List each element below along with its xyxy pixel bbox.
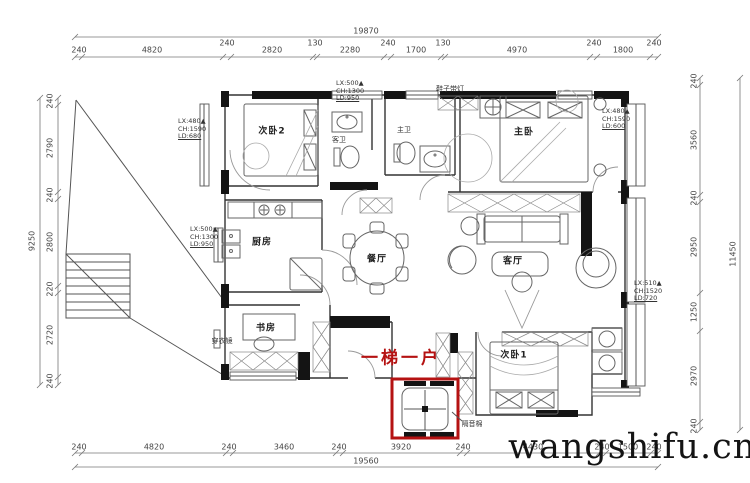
side-table (461, 217, 479, 235)
dim-label: 2720 (46, 325, 55, 345)
sofa (477, 214, 568, 244)
dim-label: 1250 (690, 302, 699, 322)
dim-label: 4820 (144, 443, 164, 452)
room-label-guest-bath: 客卫 (332, 135, 346, 145)
dim-label: 1700 (406, 46, 426, 55)
floorplan-drawing (0, 0, 750, 483)
dim-label: 2280 (340, 46, 360, 55)
dim-label: 240 (219, 39, 234, 48)
stool (512, 272, 532, 292)
label-soundproof: 隔音棉 (462, 419, 483, 429)
bed-bedroom2 (244, 104, 318, 176)
room-label-kitchen: 厨房 (252, 235, 272, 248)
room-label-master-bath: 主卫 (397, 125, 411, 135)
label-shoe-cabinet: 鞋子带灯 (436, 84, 464, 94)
dim-label: 240 (380, 39, 395, 48)
floorplan-page: 19870 240 4820 240 2820 130 2280 240 170… (0, 0, 750, 483)
dim-label: 240 (71, 46, 86, 55)
elevator (392, 379, 462, 438)
dim-label: 1800 (613, 46, 633, 55)
dim-label: 240 (455, 443, 470, 452)
dim-label: 240 (690, 73, 699, 88)
dim-label: 240 (46, 187, 55, 202)
dim-label: 130 (307, 39, 322, 48)
dim-right-total: 11450 (729, 241, 738, 266)
dim-label: 2800 (46, 232, 55, 252)
room-label-bedroom1: 次卧1 (500, 348, 527, 361)
window-annotation: LX:510▲ CH:1520 LD:720 (634, 280, 662, 303)
toilet-guest-bath (334, 148, 340, 166)
armchair-left (448, 246, 476, 274)
dim-label: 240 (46, 373, 55, 388)
annotation-line: LD:680 (178, 133, 206, 141)
highlight-label: 一梯一户 (361, 344, 441, 369)
dim-left-total: 9250 (28, 231, 37, 251)
room-label-living: 客厅 (503, 254, 523, 267)
dim-top-total: 19870 (353, 27, 378, 36)
tv-cabinet (448, 194, 580, 212)
dim-label: 4820 (142, 46, 162, 55)
dim-label: 220 (46, 281, 55, 296)
dim-label: 2950 (690, 237, 699, 257)
dim-label: 4970 (507, 46, 527, 55)
stove (254, 202, 292, 218)
dim-label: 3460 (274, 443, 294, 452)
dim-label: 240 (46, 93, 55, 108)
window-annotation: LX:500▲ CH:1300 LD:950 (190, 226, 218, 249)
entry-arrow (505, 290, 539, 328)
annotation-line: LD:950 (190, 241, 218, 249)
watermark: wangshifu.cn (508, 427, 750, 467)
dim-label: 240 (331, 443, 346, 452)
dim-label: 3920 (391, 443, 411, 452)
annotation-line: LD:950 (336, 95, 364, 103)
dim-label: 240 (690, 190, 699, 205)
desk-chair (254, 337, 274, 351)
dim-label: 2970 (690, 366, 699, 386)
dim-label: 240 (646, 39, 661, 48)
annotation-line: LD:600 (602, 123, 630, 131)
walls-solid (221, 91, 629, 437)
armchair-right (576, 248, 616, 288)
dim-label: 240 (221, 443, 236, 452)
dim-label: 2820 (262, 46, 282, 55)
window-annotation: LX:500▲ CH:1300 LD:950 (336, 80, 364, 103)
window-annotation: LX:480▲ CH:1590 LD:600 (602, 108, 630, 131)
room-label-master-bedroom: 主卧 (514, 125, 534, 138)
dim-label: 240 (71, 443, 86, 452)
dim-label: 2790 (46, 138, 55, 158)
room-label-study: 书房 (256, 321, 276, 334)
label-mirror: 穿衣镜 (212, 336, 233, 346)
dim-bottom-total: 19560 (353, 457, 378, 466)
dim-label: 130 (435, 39, 450, 48)
annotation-line: LD:720 (634, 295, 662, 303)
dim-label: 240 (586, 39, 601, 48)
room-label-dining: 餐厅 (367, 252, 387, 265)
room-label-bedroom2: 次卧2 (258, 124, 285, 137)
window-annotation: LX:480▲ CH:1590 LD:680 (178, 118, 206, 141)
dim-label: 3560 (690, 130, 699, 150)
